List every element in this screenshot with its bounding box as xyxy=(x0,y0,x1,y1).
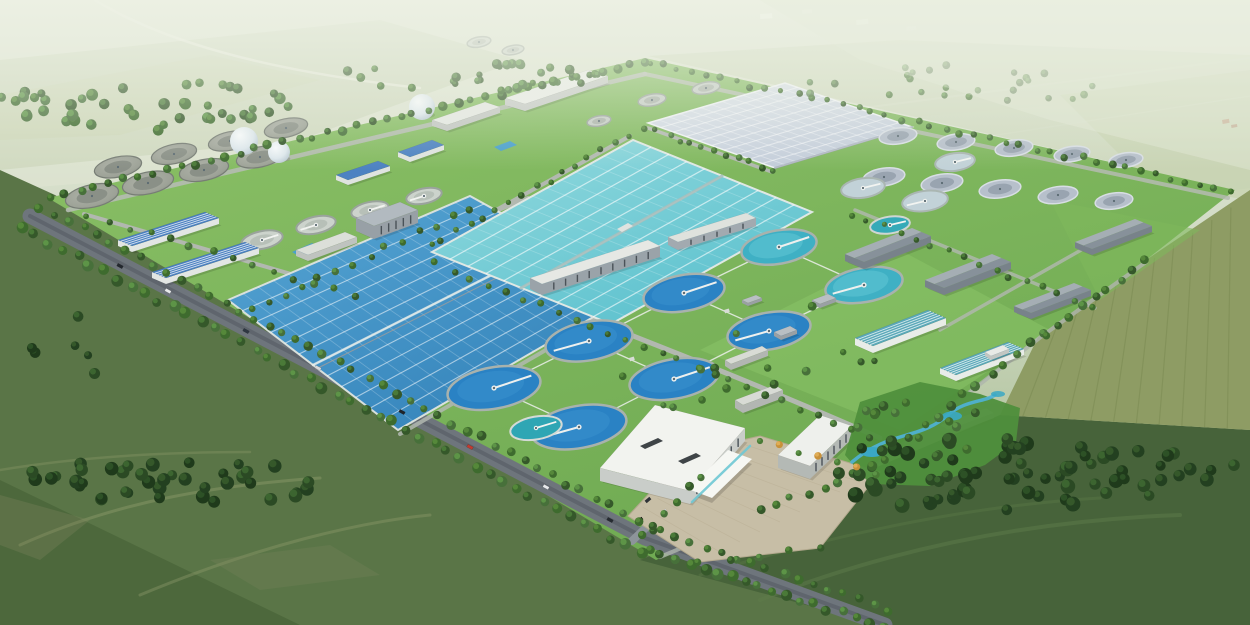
aerial-rendering: Bird's-eye architectural rendering of a … xyxy=(0,0,1250,625)
scene-svg xyxy=(0,0,1250,625)
scene-layers xyxy=(0,0,1250,625)
